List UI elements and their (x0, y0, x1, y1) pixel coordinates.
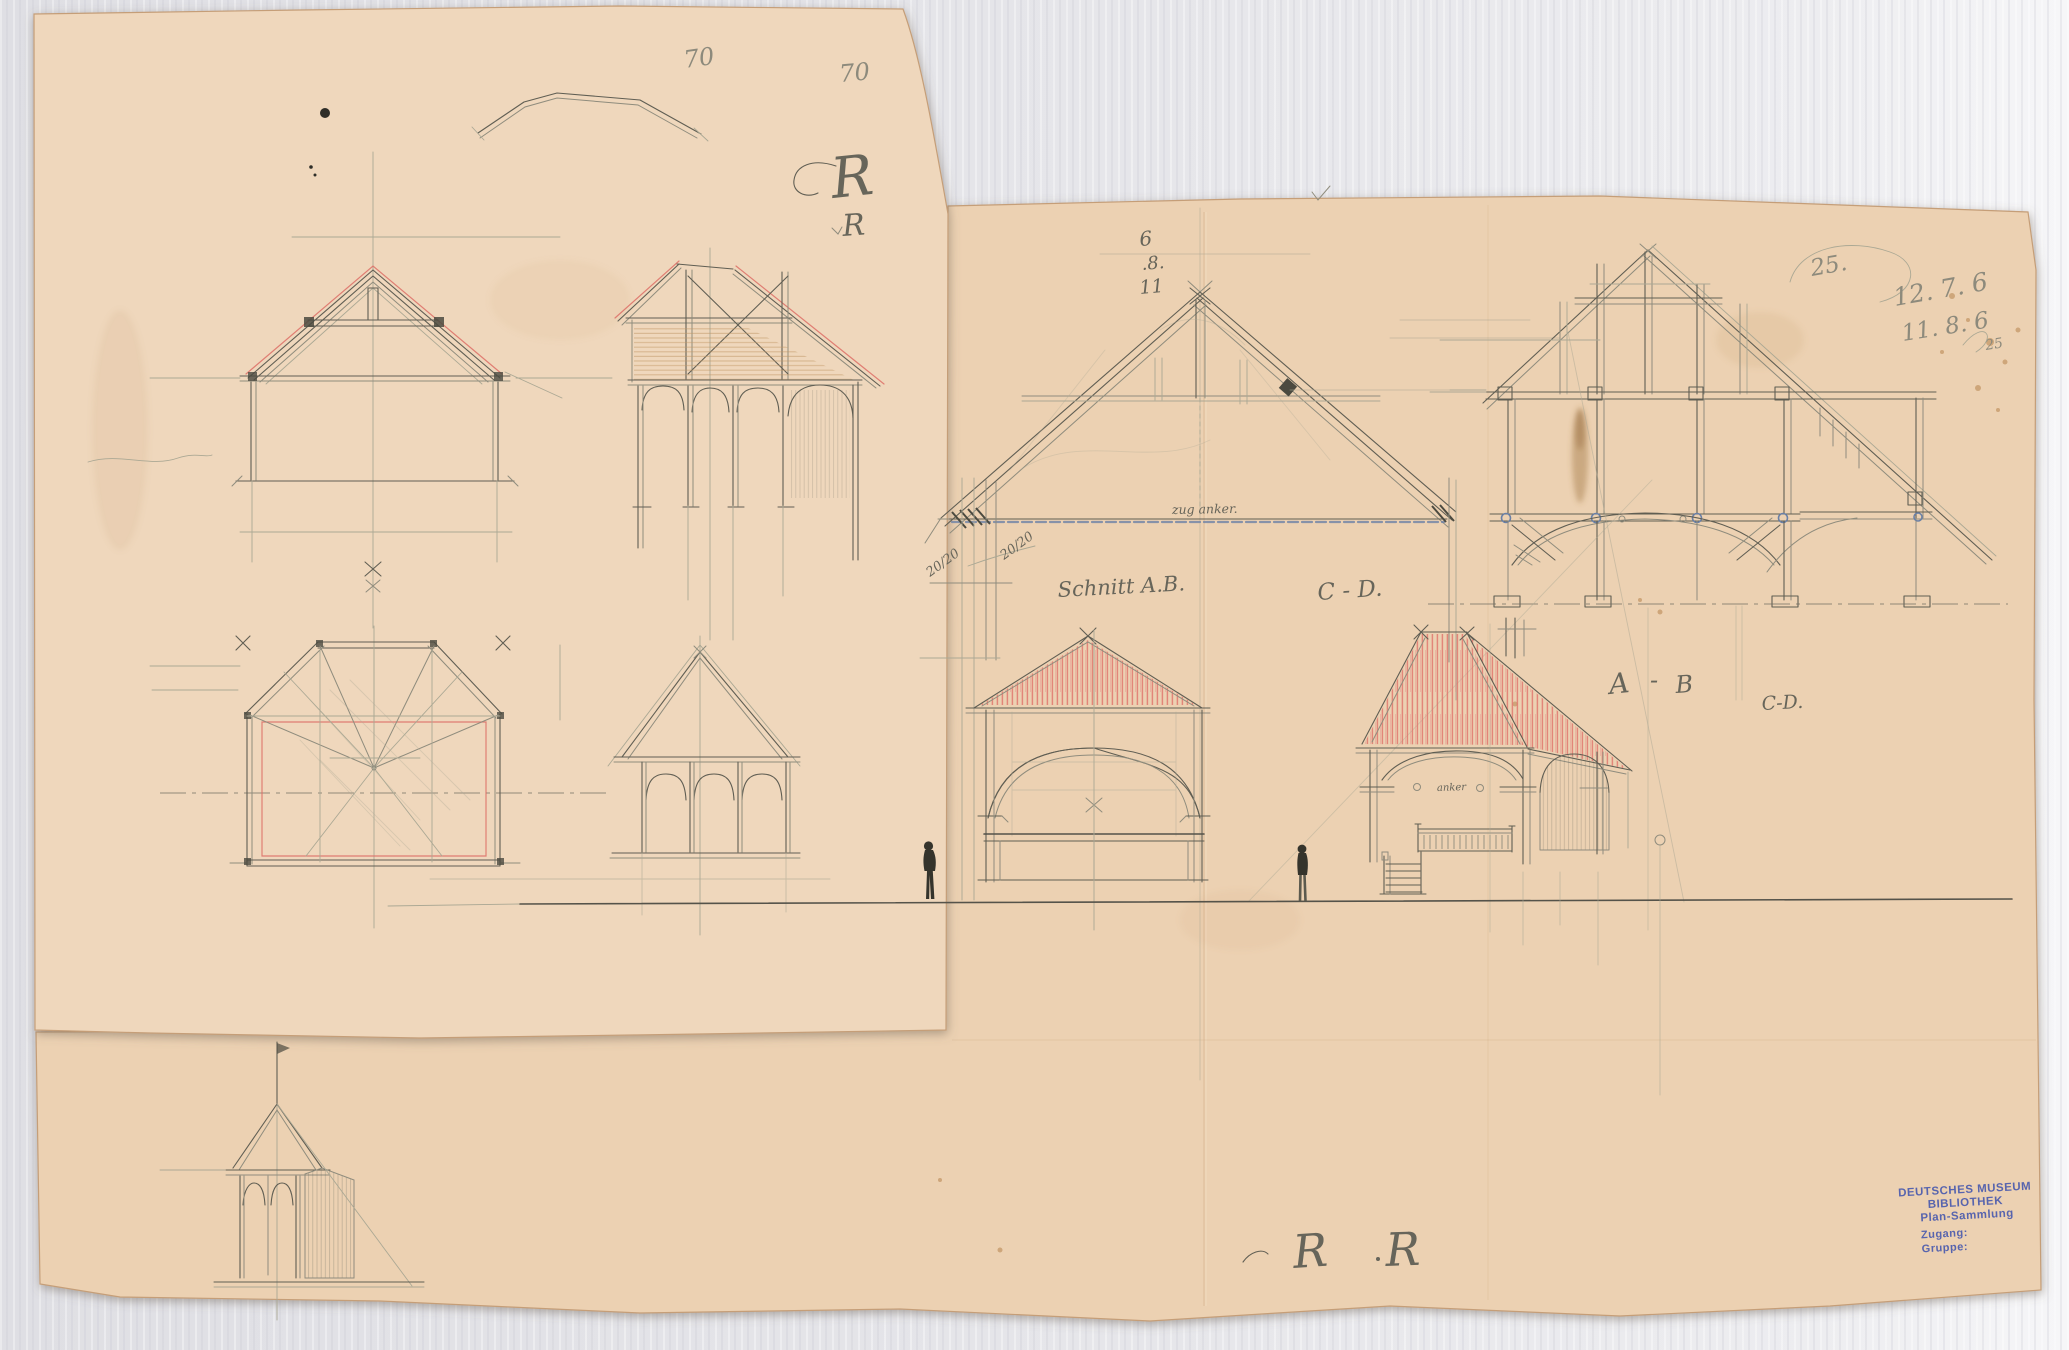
section-label-cd: C - D. (1317, 576, 1384, 606)
signature-left: R (1290, 1223, 1329, 1279)
date-stack-2: .8. (1141, 252, 1166, 275)
left-sheet (34, 6, 948, 1038)
ink-dot (320, 108, 330, 118)
marker-dash: - (1650, 666, 1658, 694)
signature-right: R (1383, 1222, 1421, 1277)
date-stack-1: 6 (1138, 226, 1153, 251)
monogram-small: R (840, 207, 866, 244)
marker-cd-small: C-D. (1761, 691, 1804, 715)
date-stack-3: 11 (1139, 275, 1165, 299)
signature-dot (1376, 1257, 1380, 1261)
stamp-line-4: Zugang: (1921, 1227, 1968, 1241)
pencil-note-2-suffix: 25 (1983, 335, 2004, 354)
stamp-line-5: Gruppe: (1921, 1241, 1968, 1255)
scanned-drawing-sheet: 70 70 R R 6 .8. 11 25. 12. 7. 6 11. 8. 6… (0, 0, 2069, 1350)
annotation-70-left: 70 (682, 42, 716, 74)
tie-rod-label: zug anker. (1171, 501, 1238, 517)
marker-b: B (1673, 670, 1694, 699)
anchor-label: anker (1437, 782, 1468, 794)
monogram-large: R (827, 143, 877, 212)
annotation-70-right: 70 (838, 57, 871, 88)
